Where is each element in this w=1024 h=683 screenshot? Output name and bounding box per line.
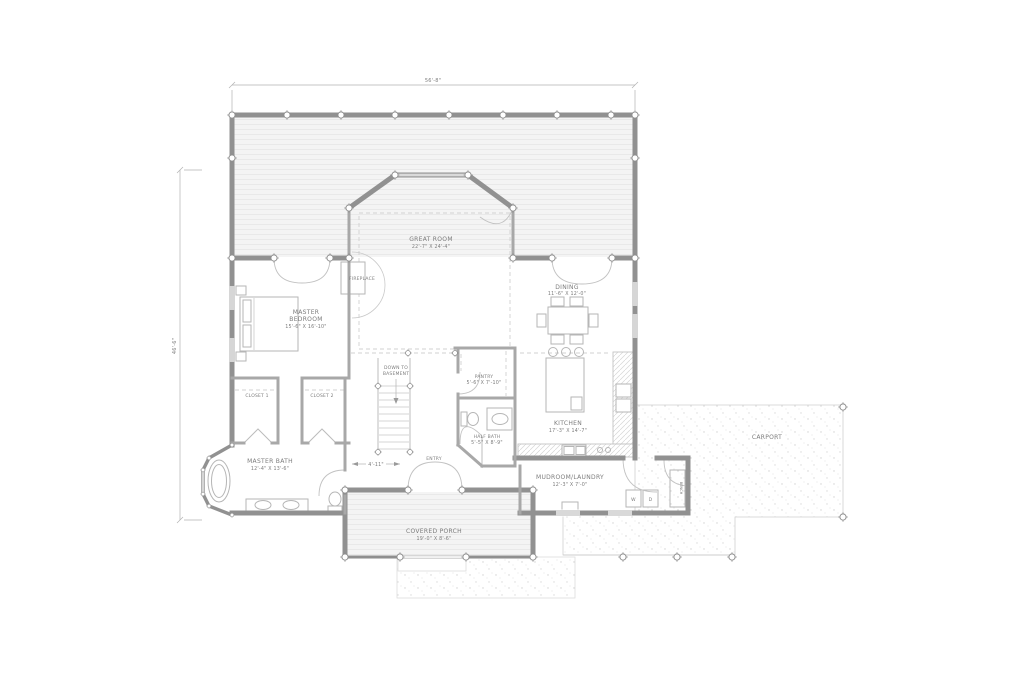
left-dimension-label: 46'-6" bbox=[172, 338, 178, 354]
half-bath-size: 5'-5" X 8'-9" bbox=[471, 440, 503, 446]
master-bath-label: MASTER BATH bbox=[247, 458, 293, 465]
great-room-size: 22'-7" X 24'-4" bbox=[412, 244, 450, 250]
pantry-shelves bbox=[461, 351, 506, 396]
floor-plan-drawing: 56'-8" 46'-6" GREAT ROOM 22'-7" X 24'-4"… bbox=[0, 0, 1024, 683]
master-bedroom-size: 15'-6" X 16'-10" bbox=[285, 324, 326, 330]
stairs-label-2: BASEMENT bbox=[383, 371, 409, 377]
top-dimension-label: 56'-8" bbox=[425, 78, 441, 84]
closet-1-label: CLOSET 1 bbox=[245, 393, 268, 399]
entry-steps-patio bbox=[397, 557, 575, 598]
kitchen-label: KITCHEN bbox=[554, 420, 582, 427]
floor-plan-sheet: 56'-8" 46'-6" GREAT ROOM 22'-7" X 24'-4"… bbox=[0, 0, 1024, 683]
mudroom-label: MUDROOM/LAUNDRY bbox=[536, 474, 604, 481]
dining-label: DINING bbox=[555, 284, 579, 291]
pantry-label: PANTRY bbox=[475, 374, 493, 380]
fireplace-label: FIREPLACE bbox=[349, 276, 375, 282]
bench-label: BENCH bbox=[679, 482, 683, 495]
half-bath-label: HALF BATH bbox=[474, 434, 501, 440]
entry-label: ENTRY bbox=[426, 456, 442, 462]
carport-slab bbox=[563, 405, 843, 555]
covered-porch-size: 19'-0" X 8'-6" bbox=[417, 536, 452, 542]
mudroom-size: 12'-3" X 7'-0" bbox=[553, 482, 588, 488]
pantry-size: 5'-6" X 7'-10" bbox=[467, 380, 502, 386]
kitchen-island bbox=[546, 348, 584, 413]
master-bath-size: 12'-4" X 13'-6" bbox=[251, 466, 289, 472]
dining-table-set bbox=[537, 297, 598, 344]
carport-label: CARPORT bbox=[752, 434, 782, 441]
covered-porch-floor bbox=[347, 492, 531, 555]
dining-size: 11'-6" X 12'-0" bbox=[548, 291, 586, 297]
great-room-label: GREAT ROOM bbox=[409, 236, 453, 243]
master-bedroom-label-1: MASTER bbox=[293, 309, 320, 316]
covered-porch-label: COVERED PORCH bbox=[406, 528, 462, 535]
closet-2-label: CLOSET 2 bbox=[310, 393, 333, 399]
dryer-label: D bbox=[649, 497, 653, 503]
kitchen-size: 17'-3" X 14'-7" bbox=[549, 428, 587, 434]
washer-label: W bbox=[631, 497, 636, 503]
foyer-dimension-label: 4'-11" bbox=[368, 462, 384, 468]
master-bed bbox=[236, 286, 298, 361]
master-bedroom-label-2: BEDROOM bbox=[289, 316, 322, 323]
stairs-label-1: DOWN TO bbox=[384, 365, 408, 371]
